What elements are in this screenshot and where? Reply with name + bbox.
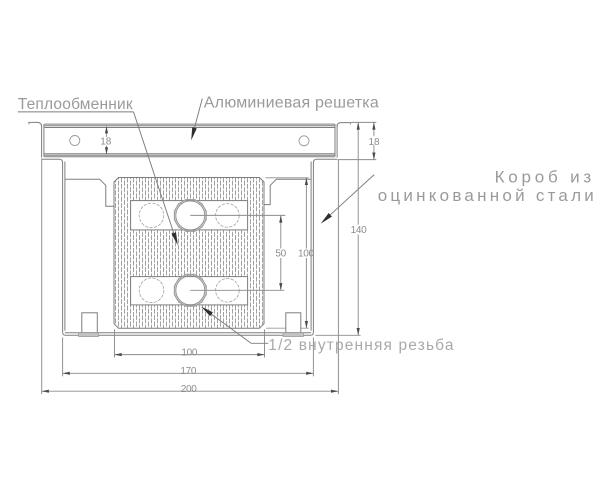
svg-text:оцинкованной стали: оцинкованной стали bbox=[378, 186, 597, 205]
svg-text:200: 200 bbox=[181, 384, 198, 395]
svg-text:18: 18 bbox=[100, 137, 112, 148]
svg-text:170: 170 bbox=[180, 366, 197, 377]
svg-text:50: 50 bbox=[275, 249, 286, 260]
svg-text:140: 140 bbox=[351, 225, 368, 236]
svg-text:100: 100 bbox=[181, 347, 198, 358]
svg-text:1/2 внутренняя резьба: 1/2 внутренняя резьба bbox=[268, 337, 454, 354]
svg-text:18: 18 bbox=[368, 137, 380, 148]
svg-text:Теплообменник: Теплообменник bbox=[18, 96, 133, 113]
svg-text:100: 100 bbox=[298, 249, 315, 260]
svg-text:Алюминиевая решетка: Алюминиевая решетка bbox=[204, 95, 379, 112]
svg-text:Короб из: Короб из bbox=[495, 168, 595, 187]
